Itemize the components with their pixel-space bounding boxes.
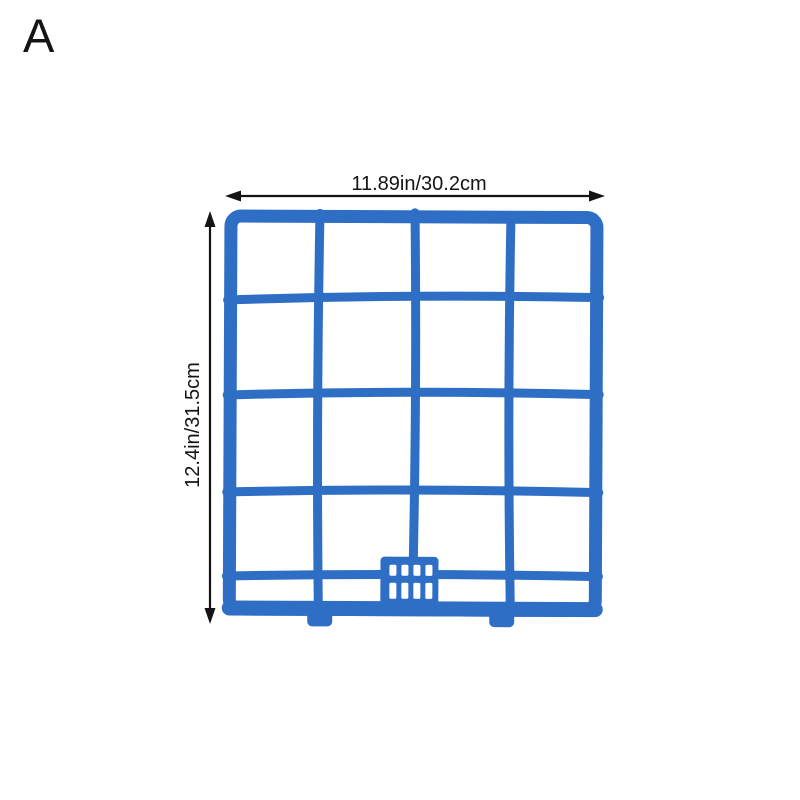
frame-horizontal-bar — [228, 295, 600, 302]
frame-vertical-bar — [508, 215, 512, 607]
frame-vertical-bar — [412, 213, 416, 607]
height-dimension-label: 12.4in/31.5cm — [182, 362, 204, 488]
frame-latch — [380, 557, 438, 609]
frame-foot — [489, 605, 514, 627]
width-dimension-label: 11.89in/30.2cm — [351, 173, 486, 195]
filter-dimension-diagram: 11.89in/30.2cm 12.4in/31.5cm — [0, 0, 800, 800]
product-image: A — [0, 0, 800, 800]
frame-foot — [307, 604, 332, 626]
width-dimension: 11.89in/30.2cm — [225, 173, 605, 202]
frame-horizontal-bar — [227, 489, 599, 493]
frame-horizontal-bar — [227, 391, 599, 396]
height-dimension: 12.4in/31.5cm — [182, 211, 216, 624]
filter-frame — [226, 212, 600, 611]
frame-vertical-bar — [317, 213, 320, 606]
